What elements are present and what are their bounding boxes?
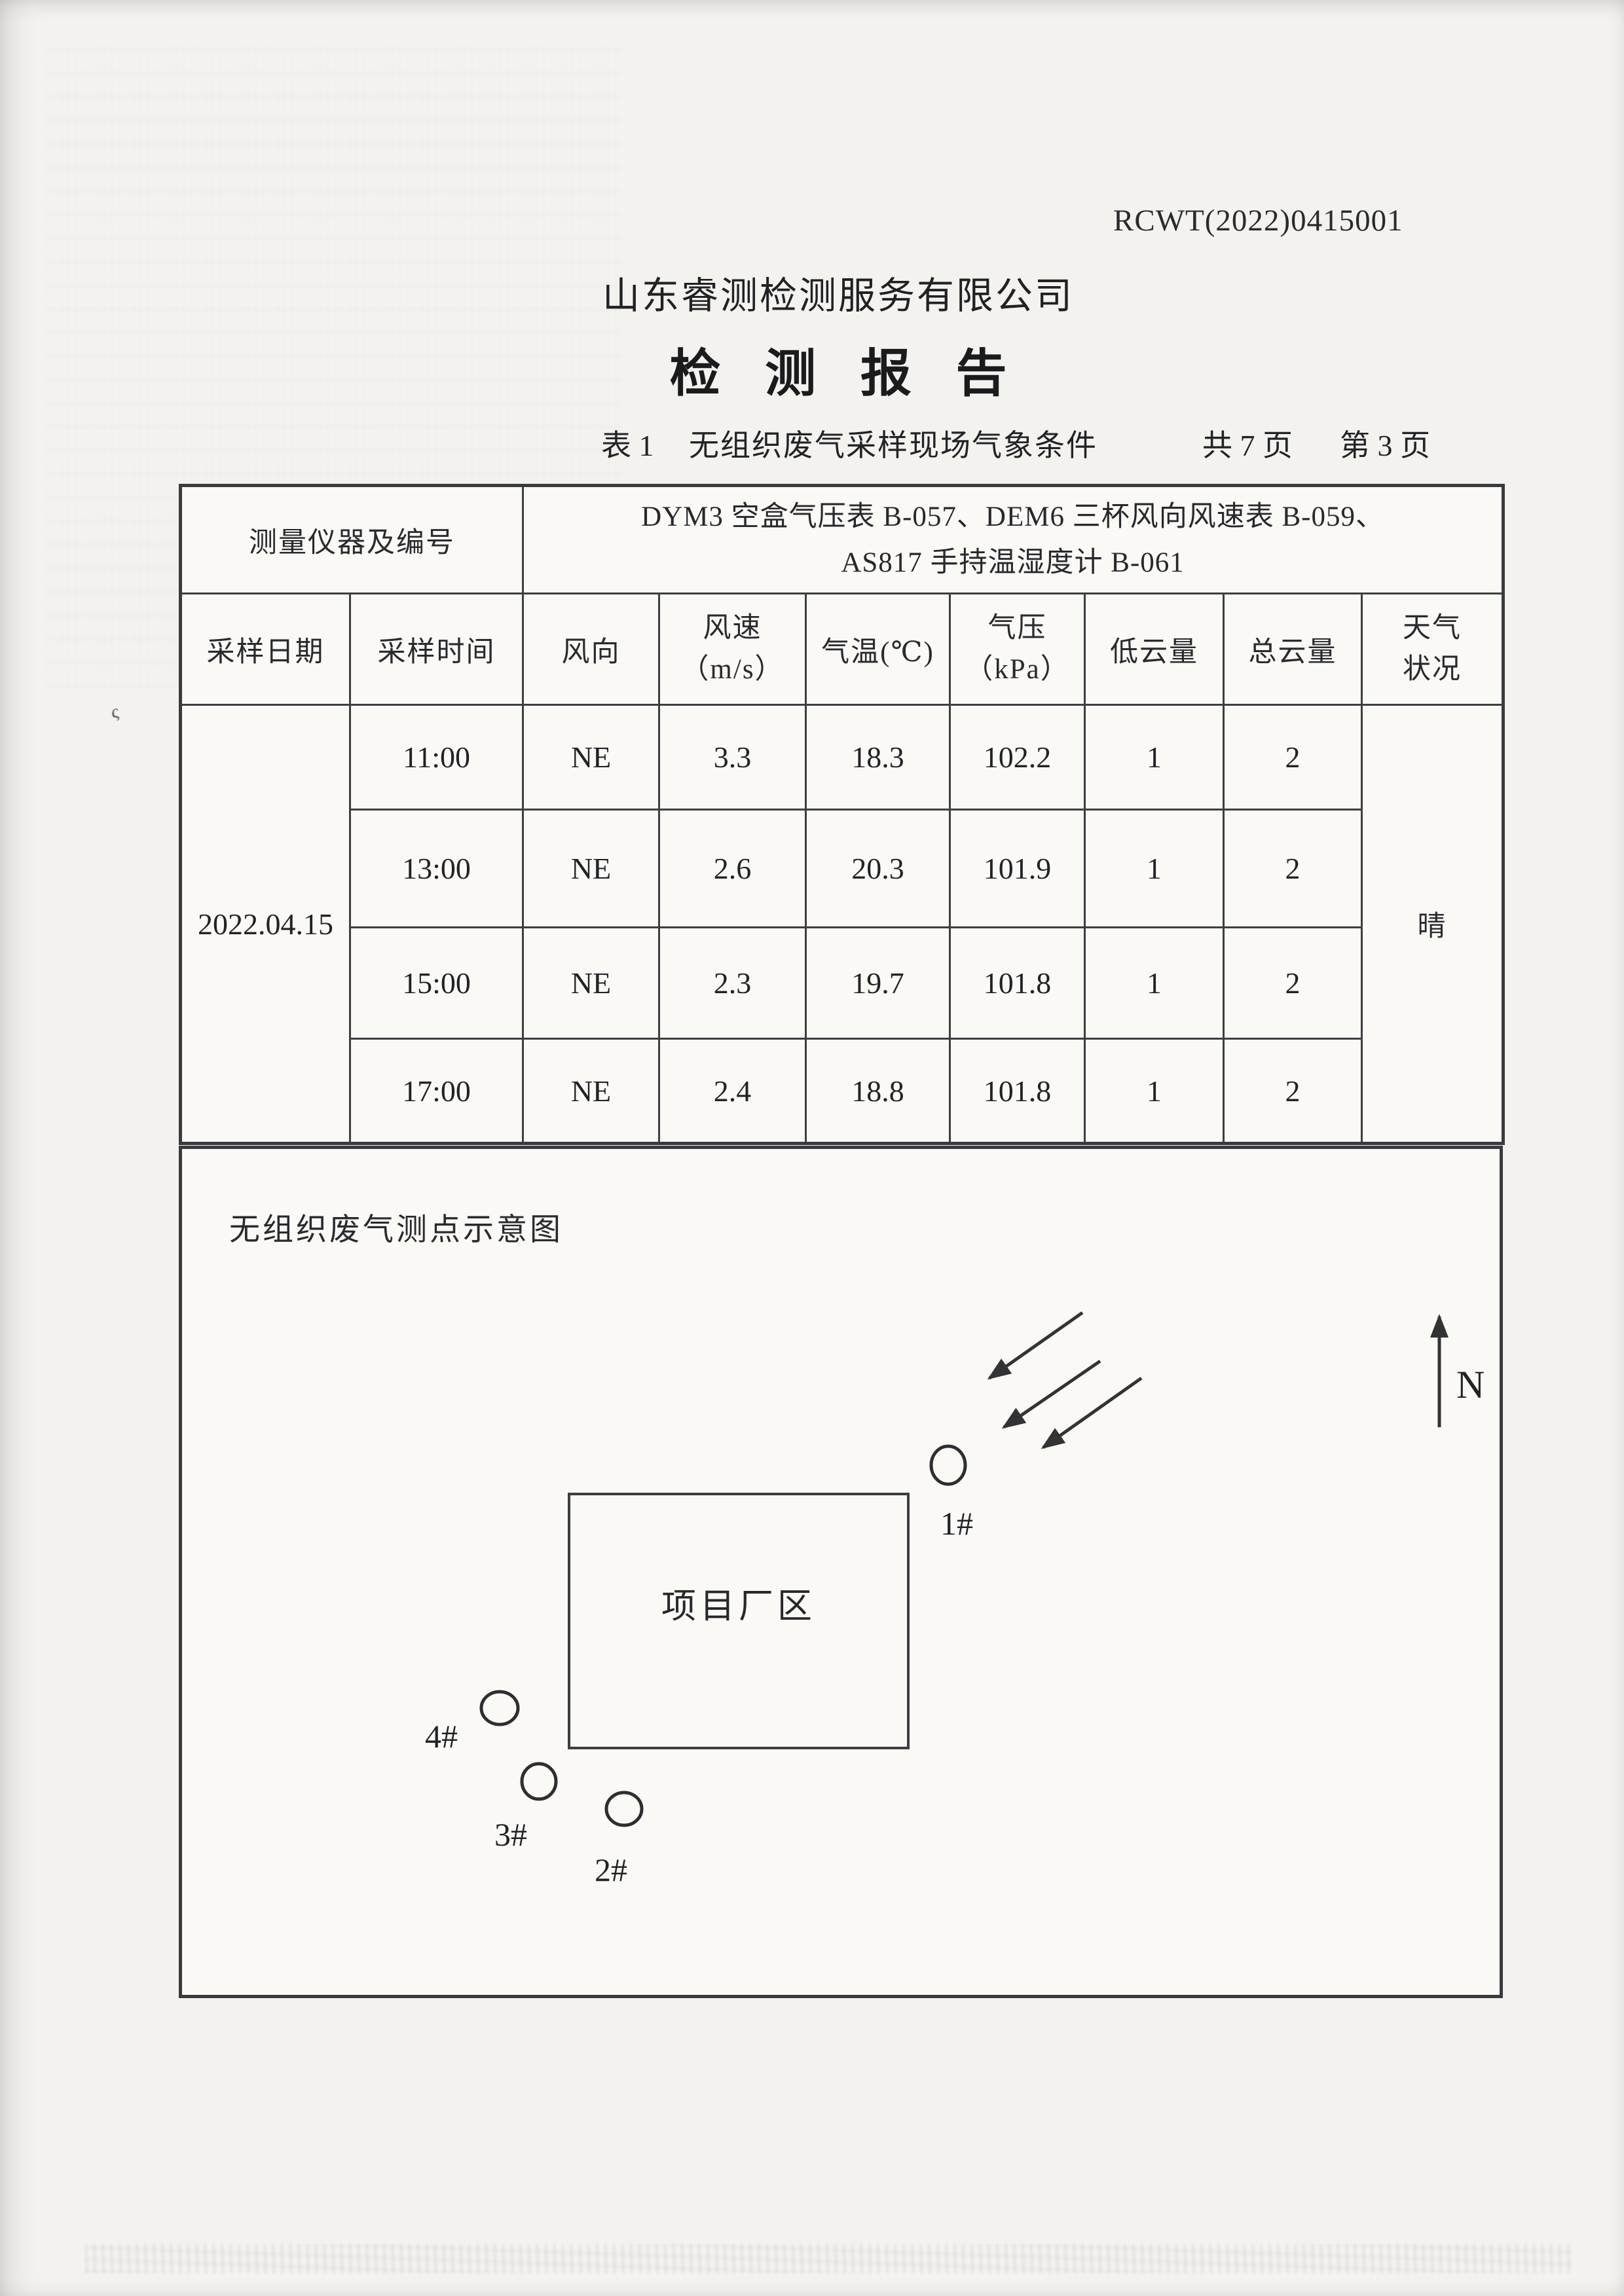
column-header-date: 采样日期 (181, 594, 350, 705)
table-row: 13:00 NE 2.6 20.3 101.9 1 2 (181, 810, 1504, 928)
wind-direction-cell: NE (523, 810, 659, 928)
column-header-low-cloud: 低云量 (1085, 594, 1224, 705)
column-header-total-cloud: 总云量 (1224, 594, 1362, 705)
report-number: RCWT(2022)0415001 (1113, 203, 1403, 238)
pressure-cell: 101.9 (950, 810, 1085, 928)
table-caption: 无组织废气采样现场气象条件 (689, 422, 1098, 465)
column-header-wind-direction: 风向 (523, 594, 659, 705)
project-site-label: 项目厂区 (661, 1578, 816, 1628)
time-cell: 11:00 (350, 705, 523, 810)
wind-speed-cell: 3.3 (659, 705, 806, 810)
total-pages: 共 7 页 (1202, 422, 1293, 465)
temperature-cell: 20.3 (806, 810, 950, 928)
north-label: N (1456, 1362, 1485, 1408)
sampling-point-3-marker (522, 1764, 556, 1799)
instrument-list-cell: DYM3 空盒气压表 B-057、DEM6 三杯风向风速表 B-059、 AS8… (523, 486, 1504, 594)
table-row: 2022.04.15 11:00 NE 3.3 18.3 102.2 1 2 晴 (181, 705, 1504, 810)
table-row: 17:00 NE 2.4 18.8 101.8 1 2 (181, 1039, 1504, 1144)
low-cloud-cell: 1 (1085, 928, 1224, 1039)
pressure-cell: 102.2 (950, 705, 1085, 810)
column-header-time: 采样时间 (350, 594, 523, 705)
document-title: 检 测 报 告 (647, 333, 1029, 406)
column-header-wind-speed: 风速（m/s） (659, 594, 806, 705)
wind-direction-cell: NE (523, 705, 659, 810)
pressure-cell: 101.8 (950, 1039, 1085, 1144)
sampling-date-cell: 2022.04.15 (181, 705, 350, 1144)
low-cloud-cell: 1 (1085, 1039, 1224, 1144)
current-page: 第 3 页 (1340, 422, 1430, 465)
instrument-line-1: DYM3 空盒气压表 B-057、DEM6 三杯风向风速表 B-059、 (524, 494, 1502, 540)
total-cloud-cell: 2 (1224, 705, 1362, 810)
scan-artifact (85, 2244, 1572, 2273)
wind-arrow (989, 1313, 1082, 1378)
report-page: ς RCWT(2022)0415001 山东睿测检测服务有限公司 检 测 报 告… (0, 0, 1624, 2296)
instrument-line-2: AS817 手持温湿度计 B-061 (524, 540, 1502, 586)
column-header-weather: 天气状况 (1362, 594, 1504, 705)
column-header-temperature: 气温(℃) (806, 594, 950, 705)
total-cloud-cell: 2 (1224, 928, 1362, 1039)
wind-speed-cell: 2.3 (659, 928, 806, 1039)
table-label: 表 1 (601, 422, 654, 465)
pressure-cell: 101.8 (950, 928, 1085, 1039)
total-cloud-cell: 2 (1224, 810, 1362, 928)
sampling-point-4-marker (481, 1692, 518, 1724)
wind-direction-cell: NE (523, 928, 659, 1039)
temperature-cell: 19.7 (806, 928, 950, 1039)
wind-direction-cell: NE (523, 1039, 659, 1144)
temperature-cell: 18.8 (806, 1039, 950, 1144)
column-header-pressure: 气压（kPa） (950, 594, 1085, 705)
wind-direction-arrows (989, 1313, 1141, 1448)
project-site-box: 项目厂区 (568, 1493, 910, 1749)
weather-status-cell: 晴 (1362, 705, 1504, 1144)
scan-artifact: ς (110, 701, 120, 723)
time-cell: 13:00 (350, 810, 523, 928)
wind-speed-cell: 2.4 (659, 1039, 806, 1144)
time-cell: 17:00 (350, 1039, 523, 1144)
sampling-point-2-marker (606, 1793, 642, 1825)
table-row: 15:00 NE 2.3 19.7 101.8 1 2 (181, 928, 1504, 1039)
temperature-cell: 18.3 (806, 705, 950, 810)
measurement-points-diagram: 无组织废气测点示意图 项目厂区 1# 2# (179, 1146, 1503, 1998)
low-cloud-cell: 1 (1085, 705, 1224, 810)
weather-conditions-table: 测量仪器及编号 DYM3 空盒气压表 B-057、DEM6 三杯风向风速表 B-… (179, 484, 1505, 1145)
sampling-point-1-label: 1# (940, 1504, 973, 1542)
sampling-point-3-label: 3# (494, 1815, 527, 1853)
total-cloud-cell: 2 (1224, 1039, 1362, 1144)
low-cloud-cell: 1 (1085, 810, 1224, 928)
sampling-point-4-label: 4# (425, 1717, 458, 1755)
sampling-point-1-marker (931, 1446, 965, 1484)
wind-speed-cell: 2.6 (659, 810, 806, 928)
company-name: 山东睿测检测服务有限公司 (597, 266, 1079, 319)
instrument-label-cell: 测量仪器及编号 (181, 486, 523, 594)
time-cell: 15:00 (350, 928, 523, 1039)
sampling-point-2-label: 2# (595, 1851, 627, 1889)
